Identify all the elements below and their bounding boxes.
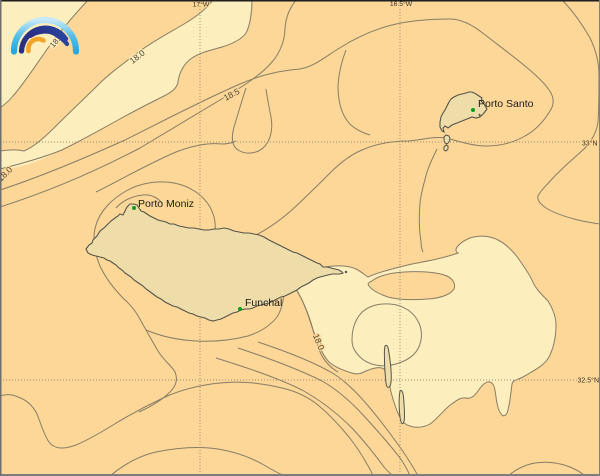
svg-text:33°N: 33°N <box>582 140 598 148</box>
svg-text:Porto Moniz: Porto Moniz <box>138 198 194 210</box>
svg-text:Funchal: Funchal <box>245 297 282 309</box>
svg-text:32.5°N: 32.5°N <box>578 377 599 385</box>
svg-text:17°W: 17°W <box>193 1 210 9</box>
svg-text:Porto Santo: Porto Santo <box>478 98 534 110</box>
